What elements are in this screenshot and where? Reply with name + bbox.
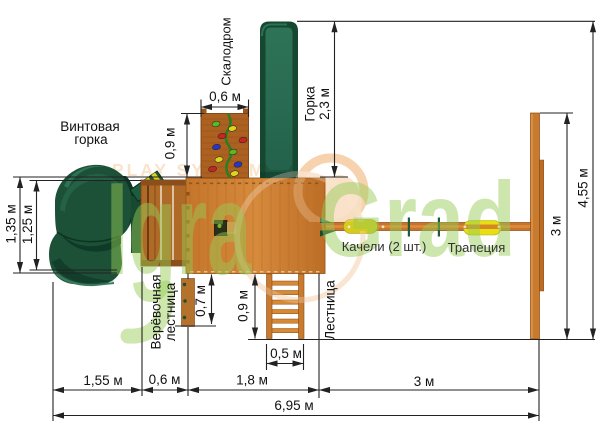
svg-text:0,9 м: 0,9 м	[236, 290, 251, 322]
svg-text:Качели (2 шт.): Качели (2 шт.)	[342, 239, 427, 254]
svg-text:горка: горка	[74, 132, 108, 147]
svg-text:4,55 м: 4,55 м	[576, 168, 591, 207]
svg-text:лестница: лестница	[163, 282, 178, 341]
svg-text:1,25 м: 1,25 м	[20, 205, 35, 244]
svg-text:2,3 м: 2,3 м	[317, 88, 332, 120]
svg-text:0,5 м: 0,5 м	[270, 346, 302, 361]
svg-text:0,6 м: 0,6 м	[149, 372, 181, 387]
svg-text:0,7 м: 0,7 м	[193, 285, 208, 317]
svg-text:Трапеция: Трапеция	[448, 240, 506, 255]
svg-text:0,6 м: 0,6 м	[209, 89, 241, 104]
svg-text:3 м: 3 м	[549, 216, 564, 237]
svg-text:Скалодром: Скалодром	[218, 17, 233, 85]
svg-text:1,35 м: 1,35 м	[4, 204, 19, 243]
svg-text:0,9 м: 0,9 м	[163, 128, 178, 160]
svg-text:3 м: 3 м	[414, 374, 435, 389]
svg-text:Grad: Grad	[318, 161, 516, 279]
svg-text:1,55 м: 1,55 м	[83, 373, 122, 388]
svg-text:Горка: Горка	[303, 86, 318, 122]
svg-text:1,8 м: 1,8 м	[236, 373, 268, 388]
svg-text:Лестница: Лестница	[323, 280, 338, 340]
svg-text:6,95 м: 6,95 м	[274, 398, 313, 413]
svg-text:Верёвочная: Верёвочная	[149, 274, 164, 349]
